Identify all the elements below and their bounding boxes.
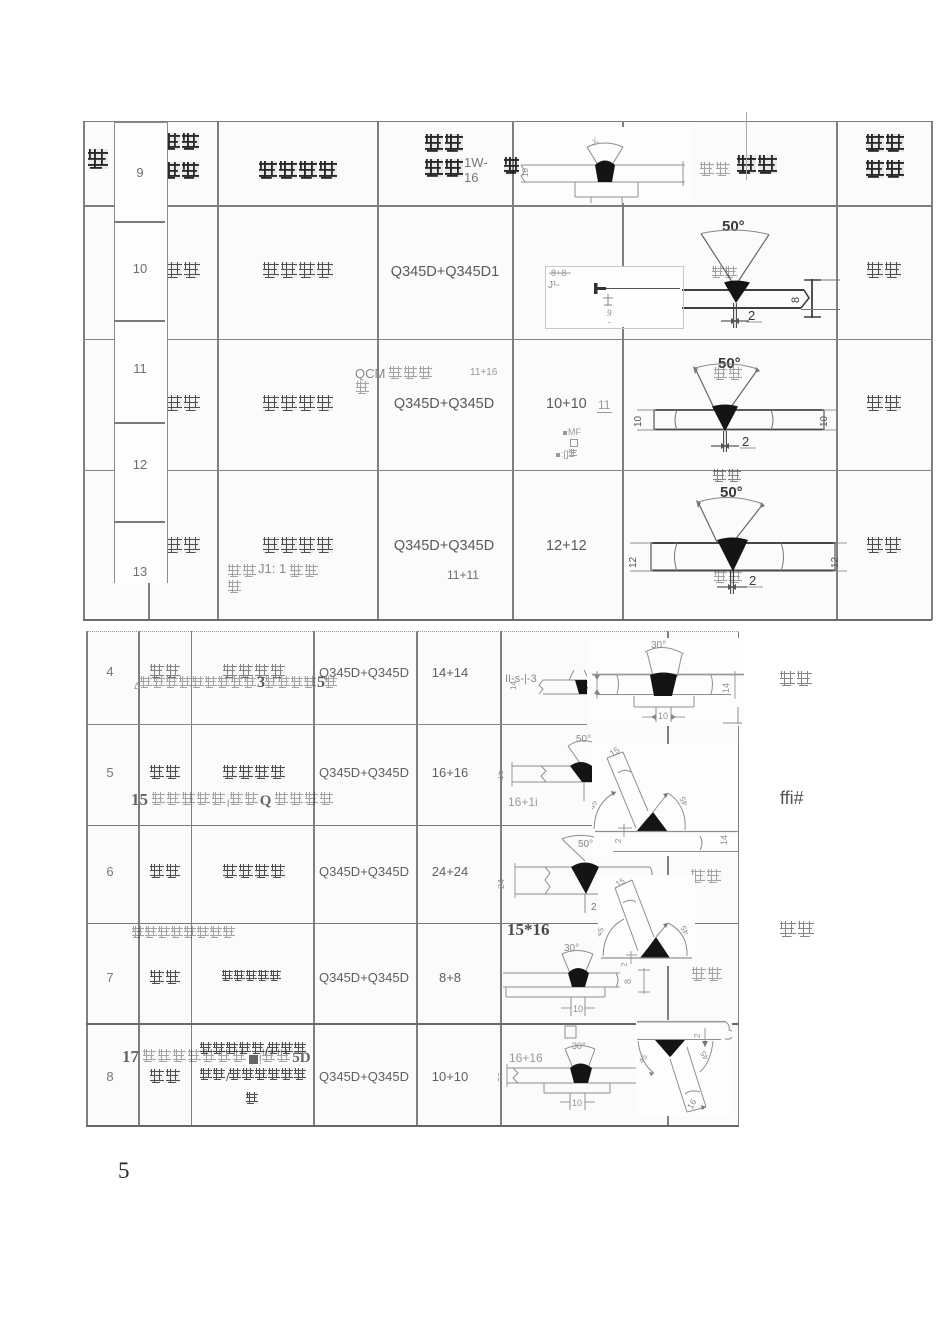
svg-text:2: 2 — [591, 902, 597, 913]
svg-text:16: 16 — [498, 770, 505, 780]
svg-text:10: 10 — [498, 1072, 501, 1082]
svg-text:2: 2 — [748, 308, 755, 323]
svg-text:24: 24 — [498, 879, 506, 889]
svg-text:50°: 50° — [578, 839, 593, 850]
svg-text:12: 12 — [628, 556, 639, 568]
svg-text:14: 14 — [509, 681, 518, 690]
svg-text:10: 10 — [572, 1098, 582, 1108]
svg-text:8: 8 — [790, 297, 802, 303]
svg-text:14: 14 — [721, 683, 731, 693]
svg-text:14: 14 — [719, 835, 729, 845]
svg-text:2: 2 — [693, 1033, 702, 1038]
svg-text:50°: 50° — [576, 734, 591, 745]
svg-text:30°: 30° — [651, 640, 666, 651]
svg-text:10: 10 — [573, 1004, 583, 1014]
svg-text:14: 14 — [587, 681, 590, 690]
svg-text:2: 2 — [749, 573, 756, 588]
svg-text:10: 10 — [819, 415, 830, 427]
svg-text:10: 10 — [606, 202, 616, 203]
svg-text:2: 2 — [742, 434, 749, 449]
svg-text:8: 8 — [623, 979, 633, 984]
svg-text:50°: 50° — [722, 218, 745, 235]
svg-text:12: 12 — [830, 556, 841, 568]
svg-text::i-: :i- — [591, 137, 599, 148]
svg-text:10: 10 — [658, 711, 668, 721]
svg-text:10: 10 — [521, 168, 530, 177]
svg-text:10: 10 — [633, 415, 644, 427]
